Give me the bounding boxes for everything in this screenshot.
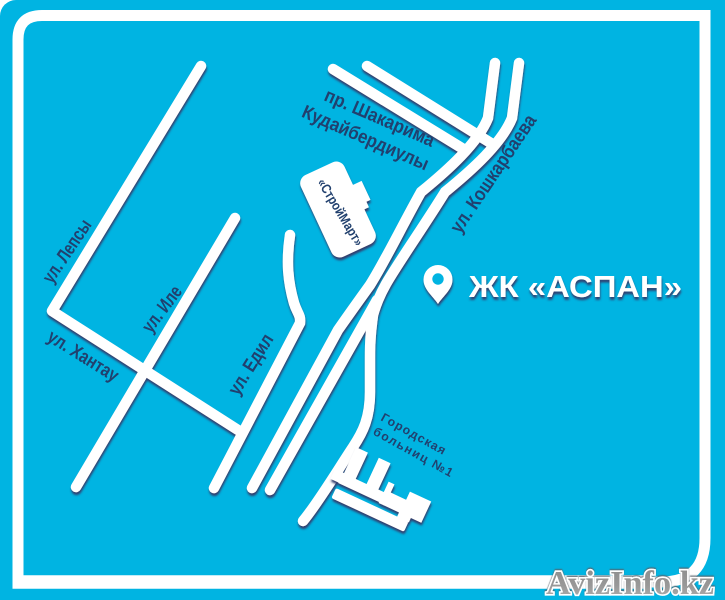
svg-text:ЖК «АСПАН»: ЖК «АСПАН» (468, 269, 682, 304)
svg-text:AvizInfo.kz: AvizInfo.kz (546, 565, 714, 600)
